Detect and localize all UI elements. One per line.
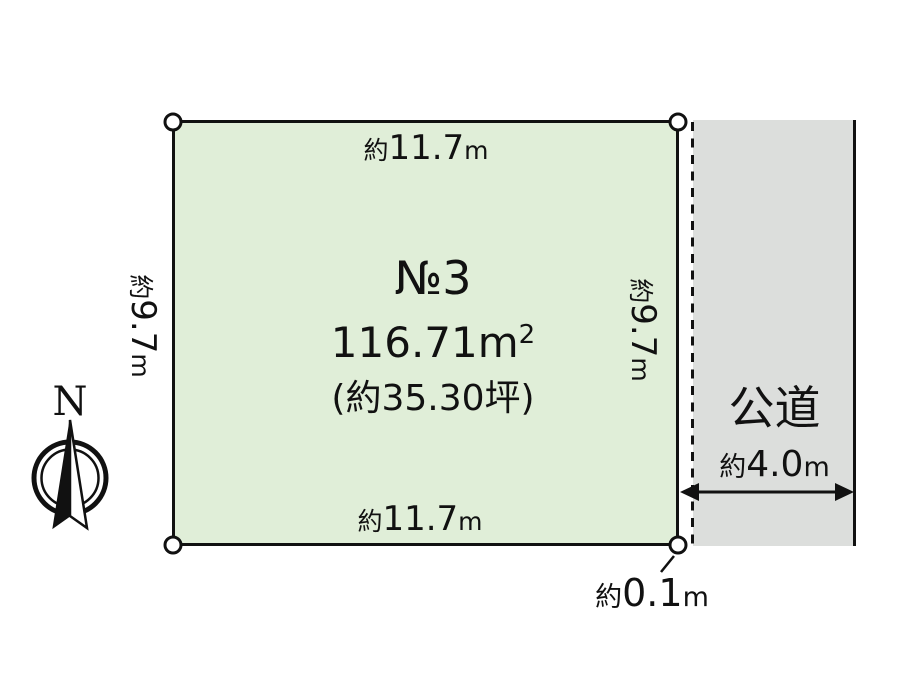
dim-left-prefix: 約 bbox=[126, 274, 155, 299]
plot-tsubo-close: ) bbox=[521, 378, 535, 419]
north-label: N bbox=[53, 382, 88, 422]
compass-inner-ring bbox=[42, 450, 99, 507]
plot-area-unit-sup: 2 bbox=[519, 320, 536, 350]
plot-tsubo-text: 約35.30坪 bbox=[345, 378, 520, 419]
north-arrow-black-half bbox=[53, 420, 70, 528]
site-plan-canvas: 約11.7m 約11.7m 約9.7m 約9.7m №3 116.71m2 (約… bbox=[0, 0, 920, 690]
offset-prefix: 約 bbox=[595, 582, 622, 613]
plot-area-unit: m bbox=[478, 318, 519, 367]
offset-unit: m bbox=[683, 582, 709, 613]
corner-marker-top-left bbox=[164, 113, 183, 132]
dim-top-unit: m bbox=[464, 136, 488, 165]
compass-icon bbox=[15, 410, 125, 540]
dim-bottom-prefix: 約 bbox=[357, 507, 382, 536]
road-width-unit: m bbox=[803, 452, 829, 483]
dim-left-unit: m bbox=[126, 353, 155, 377]
dim-bottom-unit: m bbox=[458, 507, 482, 536]
plot-tsubo-label: (約35.30坪) bbox=[180, 381, 686, 417]
dim-top-label: 約11.7m bbox=[173, 131, 679, 165]
dim-left-value: 9.7 bbox=[123, 299, 163, 353]
dim-top-prefix: 約 bbox=[363, 136, 388, 165]
plot-number-prefix: № bbox=[394, 251, 442, 305]
plot-area-label: 116.71m2 bbox=[180, 322, 686, 364]
plot-tsubo-open: ( bbox=[331, 378, 345, 419]
corner-marker-bottom-right bbox=[669, 536, 688, 555]
road-width-label: 約4.0m bbox=[693, 447, 856, 483]
road-label: 公道 bbox=[693, 385, 856, 431]
north-arrow-white-half bbox=[70, 420, 87, 528]
compass-outer-ring bbox=[34, 442, 106, 514]
dim-top-value: 11.7 bbox=[388, 128, 464, 168]
offset-leader-line bbox=[661, 556, 674, 572]
plot-area-value: 116.71 bbox=[331, 318, 478, 367]
road-width-prefix: 約 bbox=[719, 452, 746, 483]
dim-left-label: 約9.7m bbox=[126, 274, 160, 377]
dim-bottom-label: 約11.7m bbox=[167, 502, 673, 536]
road-width-value: 4.0 bbox=[746, 444, 803, 485]
plot-number-value: 3 bbox=[442, 251, 471, 305]
offset-label: 約0.1m bbox=[595, 574, 709, 612]
corner-marker-top-right bbox=[669, 113, 688, 132]
offset-value: 0.1 bbox=[622, 571, 682, 615]
dim-bottom-value: 11.7 bbox=[382, 499, 458, 539]
corner-marker-bottom-left bbox=[164, 536, 183, 555]
plot-number-label: №3 bbox=[180, 255, 686, 301]
